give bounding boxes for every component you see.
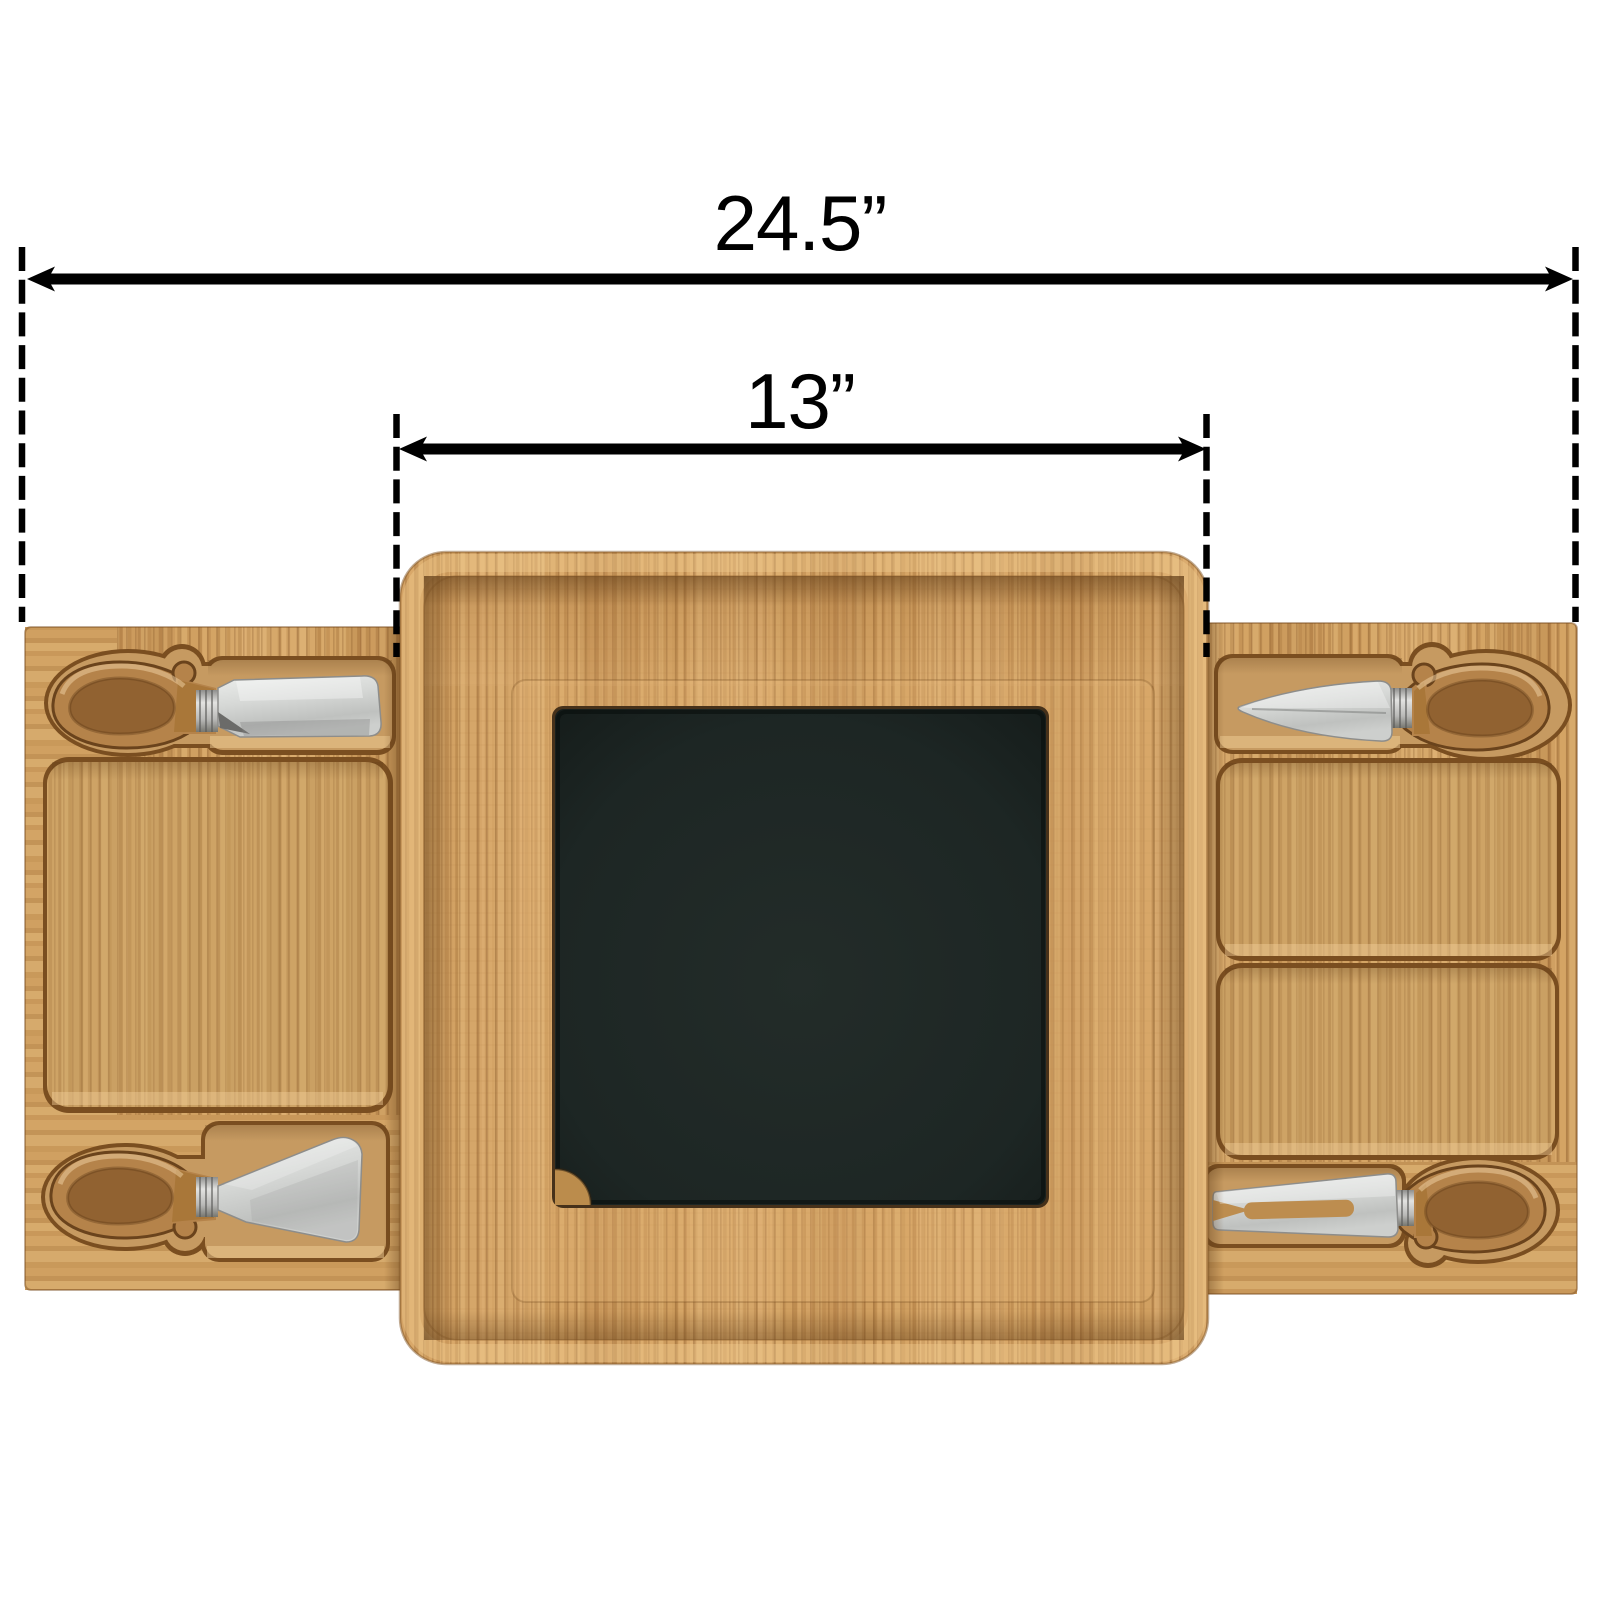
svg-text:24.5”: 24.5” xyxy=(714,179,887,267)
svg-text:13”: 13” xyxy=(745,357,855,445)
